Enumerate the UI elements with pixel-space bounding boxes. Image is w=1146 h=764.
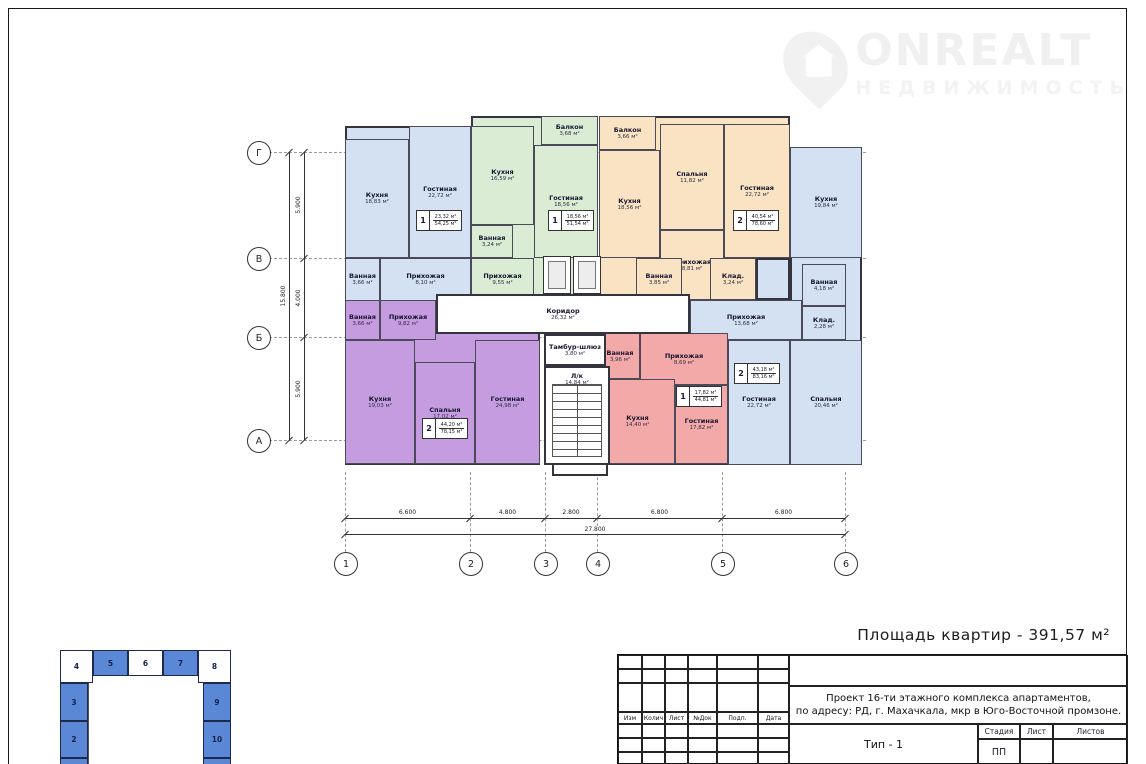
room-name: Прихожая <box>483 272 521 280</box>
sheet-header: Лист <box>1020 724 1053 739</box>
room-label: Кухня14,40 м² <box>626 414 650 429</box>
living-area: 17,82 м² <box>693 390 719 397</box>
room: Клад.2,28 м² <box>802 306 846 340</box>
room-name: Клад. <box>722 272 744 280</box>
room: Ванная4,18 м² <box>802 264 846 306</box>
room: Кухня19,84 м² <box>790 147 862 258</box>
room-name: Ванная <box>607 349 634 357</box>
room: Прихожая8,69 м² <box>640 333 728 385</box>
apartment-stamp: 244,20 м²78,15 м² <box>422 418 468 439</box>
apartment-number: 2 <box>423 419 436 438</box>
apartment-areas: 44,20 м²78,15 м² <box>436 419 467 438</box>
revision-cell <box>618 655 642 669</box>
room-label: Кухня19,84 м² <box>814 195 838 210</box>
revision-cell <box>642 752 665 764</box>
apartment-stamp: 240,54 м²78,60 м² <box>733 210 779 231</box>
revision-cell <box>665 655 688 669</box>
apartment-number: 1 <box>549 211 562 230</box>
revision-cell <box>665 683 688 712</box>
total-dimension-label: 15.800 <box>280 286 287 307</box>
room-area: 3,66 м² <box>349 280 376 287</box>
revision-cell <box>688 655 717 669</box>
total-area: 51,54 м² <box>567 221 589 227</box>
key-plan-cell: 9 <box>203 683 231 721</box>
apartment-areas: 18,56 м²51,54 м² <box>562 211 593 230</box>
room-name: Прихожая <box>406 272 444 280</box>
revision-cell <box>665 669 688 683</box>
room-name: Кухня <box>626 414 650 422</box>
room: Спальня17,02 м² <box>415 362 475 464</box>
key-plan-cell: 6 <box>128 650 163 676</box>
revision-cell <box>717 738 758 752</box>
key-plan-cell: 10 <box>203 721 231 758</box>
revision-cell <box>758 655 789 669</box>
living-area: 43,18 м² <box>751 367 777 374</box>
elevator-shaft <box>573 256 601 294</box>
title-block-empty-cell <box>789 655 1128 686</box>
room: Коридор26,32 м² <box>436 294 690 334</box>
revision-cell <box>618 752 642 764</box>
revision-cell: №Док <box>688 712 717 724</box>
room-label: Прихожая13,68 м² <box>727 313 765 328</box>
total-area: 78,60 м² <box>752 221 774 227</box>
room-name: Ванная <box>646 272 673 280</box>
key-plan-cell: 5 <box>93 650 128 676</box>
room-label: Кухня18,83 м² <box>365 191 389 206</box>
revision-cell <box>717 669 758 683</box>
revision-cell <box>618 683 642 712</box>
room-area: 9,82 м² <box>389 321 427 328</box>
elevator-shaft <box>543 256 571 294</box>
revision-cell <box>688 669 717 683</box>
room-label: Кухня16,59 м² <box>491 168 515 183</box>
room-name: Гостиная <box>549 194 583 202</box>
revision-cell <box>665 752 688 764</box>
sheet-value-cell <box>1020 739 1053 764</box>
project-description: Проект 16-ти этажного комплекса апартаме… <box>789 686 1128 724</box>
room-area: 9,55 м² <box>483 280 521 287</box>
room: Л/к14,84 м² <box>544 366 610 465</box>
room-area: 13,68 м² <box>727 321 765 328</box>
apartment-areas: 17,82 м²44,81 м² <box>690 387 721 406</box>
room-name: Гостиная <box>740 184 774 192</box>
revision-cell <box>758 683 789 712</box>
room-label: Ванная3,85 м² <box>646 272 673 287</box>
dimension-label: 5.900 <box>295 380 302 397</box>
dimension-label: 4.000 <box>295 289 302 306</box>
axis-centerline <box>470 472 471 552</box>
axis-centerline <box>345 472 346 552</box>
room-label: Прихожая8,10 м² <box>406 272 444 287</box>
room-area: 4,18 м² <box>811 286 838 293</box>
room-area: 3,68 м² <box>556 131 583 138</box>
apartment-areas: 43,18 м²83,16 м² <box>748 364 779 383</box>
room: Кухня19,03 м² <box>345 340 415 464</box>
revision-cell: Подп. <box>717 712 758 724</box>
room-area: 3,96 м² <box>607 357 634 364</box>
total-area-label: Площадь квартир - 391,57 м² <box>857 626 1110 644</box>
room-area: 26,32 м² <box>546 315 579 322</box>
apartment-areas: 40,54 м²78,60 м² <box>747 211 778 230</box>
apartment-stamp: 123,32 м²54,25 м² <box>416 210 462 231</box>
room-area: 8,69 м² <box>665 360 703 367</box>
room-label: Гостиная24,98 м² <box>491 395 525 410</box>
room: Кухня18,56 м² <box>599 150 660 258</box>
revision-cell <box>665 738 688 752</box>
living-area: 40,54 м² <box>750 214 776 221</box>
revision-cell <box>758 724 789 738</box>
room-label: Клад.2,28 м² <box>813 316 835 331</box>
room-name: Балкон <box>614 126 641 134</box>
room-name: Л/к <box>546 372 608 380</box>
dimension-line <box>304 152 305 440</box>
revision-cell <box>717 724 758 738</box>
col-axis-bubble: 2 <box>459 552 483 576</box>
key-plan-courtyard-outline <box>88 675 205 764</box>
room-name: Спальня <box>429 406 460 414</box>
room-name: Кухня <box>491 168 515 176</box>
room-label: Тамбур-шлюз3,80 м² <box>549 343 601 358</box>
revision-cell <box>717 683 758 712</box>
revision-cell <box>642 655 665 669</box>
revision-cell <box>688 724 717 738</box>
room-area: 18,56 м² <box>549 202 583 209</box>
room-area: 18,56 м² <box>618 205 642 212</box>
axis-centerline <box>545 472 546 552</box>
dimension-label: 6.800 <box>650 509 669 516</box>
room-label: Кухня18,56 м² <box>618 197 642 212</box>
brand-name: ONREALT <box>855 29 1131 73</box>
total-area: 44,81 м² <box>695 397 717 403</box>
room-name: Прихожая <box>727 313 765 321</box>
room-label: Спальня11,82 м² <box>676 170 707 185</box>
room-name: Гостиная <box>491 395 525 403</box>
room: Клад.3,24 м² <box>710 258 756 300</box>
room-label: Гостиная22,72 м² <box>740 184 774 199</box>
room: Балкон3,66 м² <box>599 116 656 150</box>
room: Гостиная22,72 м² <box>724 124 790 258</box>
room-label: Клад.3,24 м² <box>722 272 744 287</box>
living-area: 18,56 м² <box>565 214 591 221</box>
dimension-label: 2.800 <box>561 509 580 516</box>
dimension-label: 5.900 <box>295 196 302 213</box>
room-label: Ванная3,24 м² <box>479 234 506 249</box>
room-label: Гостиная22,72 м² <box>423 185 457 200</box>
revision-cell <box>758 669 789 683</box>
sheets-value-cell <box>1053 739 1128 764</box>
room-area: 3,80 м² <box>549 351 601 358</box>
room-area: 3,24 м² <box>479 242 506 249</box>
room: Ванная3,66 м² <box>345 300 380 340</box>
room: Прихожая9,82 м² <box>380 300 436 340</box>
room: Кухня16,59 м² <box>471 126 534 225</box>
axis-centerline <box>722 472 723 552</box>
apartment-stamp: 118,56 м²51,54 м² <box>548 210 594 231</box>
room-area: 18,83 м² <box>365 199 389 206</box>
room-label: Ванная3,66 м² <box>349 313 376 328</box>
room-area: 3,85 м² <box>646 280 673 287</box>
key-plan-cell <box>60 758 88 764</box>
row-axis-bubble: Г <box>247 141 271 165</box>
total-area: 83,16 м² <box>753 374 775 380</box>
room-area: 22,72 м² <box>742 403 776 410</box>
room: Ванная3,24 м² <box>471 225 513 258</box>
room-name: Кухня <box>814 195 838 203</box>
room-label: Кухня19,03 м² <box>368 395 392 410</box>
living-area: 44,20 м² <box>439 422 465 429</box>
room: Спальня20,46 м² <box>790 340 862 465</box>
room-name: Спальня <box>810 395 841 403</box>
revision-cell <box>618 738 642 752</box>
room-area: 16,59 м² <box>491 176 515 183</box>
room: Тамбур-шлюз3,80 м² <box>544 334 606 366</box>
room-label: Гостиная17,82 м² <box>685 417 719 432</box>
axis-centerline <box>845 472 846 552</box>
dimension-line <box>289 152 290 440</box>
room-name: Ванная <box>811 278 838 286</box>
revision-cell <box>642 738 665 752</box>
room-label: Гостиная18,56 м² <box>549 194 583 209</box>
row-axis-bubble: Б <box>247 326 271 350</box>
room-area: 19,84 м² <box>814 203 838 210</box>
revision-cell <box>717 752 758 764</box>
revision-cell: Дата <box>758 712 789 724</box>
room-area: 11,82 м² <box>676 178 707 185</box>
room-name: Кухня <box>618 197 642 205</box>
room-name: Ванная <box>349 272 376 280</box>
room-name: Гостиная <box>742 395 776 403</box>
dimension-line <box>345 534 845 535</box>
revision-cell <box>642 669 665 683</box>
room-name: Кухня <box>368 395 392 403</box>
key-plan-cell: 3 <box>60 683 88 721</box>
key-plan-cell: 2 <box>60 721 88 758</box>
room: Гостиная18,56 м² <box>534 145 598 258</box>
room-label: Прихожая9,55 м² <box>483 272 521 287</box>
row-axis-bubble: В <box>247 247 271 271</box>
room-label: Спальня20,46 м² <box>810 395 841 410</box>
room: Кухня18,83 м² <box>345 139 409 258</box>
title-block: ИзмКоличЛист№ДокПодп.Дата Проект 16-ти э… <box>617 654 1127 764</box>
watermark-text: ONREALT НЕДВИЖИМОСТЬ <box>855 29 1131 99</box>
room: Ванная3,66 м² <box>345 258 380 301</box>
room-label: Балкон3,66 м² <box>614 126 641 141</box>
revision-cell <box>688 683 717 712</box>
room-area: 2,28 м² <box>813 324 835 331</box>
room-area: 14,40 м² <box>626 422 650 429</box>
stage-value: ПП <box>978 739 1020 764</box>
revision-cell <box>642 683 665 712</box>
apartment-areas: 23,32 м²54,25 м² <box>430 211 461 230</box>
key-plan-cell <box>203 758 231 764</box>
apartment-number: 1 <box>677 387 690 406</box>
room-name: Гостиная <box>685 417 719 425</box>
room: Гостиная24,98 м² <box>475 340 540 464</box>
sheets-header: Листов <box>1053 724 1128 739</box>
room-name: Ванная <box>479 234 506 242</box>
room-name: Прихожая <box>665 352 703 360</box>
room-area: 19,03 м² <box>368 403 392 410</box>
apartment-number: 1 <box>417 211 430 230</box>
col-axis-bubble: 3 <box>534 552 558 576</box>
room-label: Прихожая8,69 м² <box>665 352 703 367</box>
row-axis-bubble: А <box>247 429 271 453</box>
drawing-sheet: ONREALT НЕДВИЖИМОСТЬ Кухня18,83 м²Гостин… <box>0 0 1146 764</box>
living-area: 23,32 м² <box>433 214 459 221</box>
col-axis-bubble: 4 <box>586 552 610 576</box>
room-name: Коридор <box>546 307 579 315</box>
room-label: Ванная4,18 м² <box>811 278 838 293</box>
revision-cell <box>688 738 717 752</box>
room-name: Спальня <box>676 170 707 178</box>
room-name: Ванная <box>349 313 376 321</box>
revision-cell <box>618 724 642 738</box>
key-plan-cell: 8 <box>198 650 231 683</box>
room-area: 22,72 м² <box>423 193 457 200</box>
col-axis-bubble: 1 <box>334 552 358 576</box>
room: Гостиная22,72 м² <box>409 126 471 258</box>
total-dimension-label: 27.800 <box>584 526 607 533</box>
room-name: Клад. <box>813 316 835 324</box>
location-pin-house-icon <box>770 18 861 109</box>
room-area: 3,24 м² <box>722 280 744 287</box>
room-area: 3,66 м² <box>349 321 376 328</box>
room-label: Коридор26,32 м² <box>546 307 579 322</box>
room-label: Ванная3,66 м² <box>349 272 376 287</box>
room-name: Гостиная <box>423 185 457 193</box>
room: Кухня14,40 м² <box>600 379 675 464</box>
room-label: Ванная3,96 м² <box>607 349 634 364</box>
stairs-pattern <box>552 384 602 457</box>
revision-cell <box>618 669 642 683</box>
room-name: Балкон <box>556 123 583 131</box>
room-area: 8,10 м² <box>406 280 444 287</box>
revision-cell <box>688 752 717 764</box>
revision-cell <box>665 724 688 738</box>
house-icon <box>805 57 831 77</box>
room-area: 22,72 м² <box>740 192 774 199</box>
revision-cell <box>717 655 758 669</box>
apartment-stamp: 243,18 м²83,16 м² <box>734 363 780 384</box>
project-line-1: Проект 16-ти этажного комплекса апартаме… <box>826 692 1091 706</box>
axis-centerline <box>597 472 598 552</box>
revision-cell: Изм <box>618 712 642 724</box>
brand-subtitle: НЕДВИЖИМОСТЬ <box>855 77 1131 99</box>
room: Балкон3,68 м² <box>541 116 598 145</box>
apartment-stamp: 117,82 м²44,81 м² <box>676 386 722 407</box>
key-plan-cell: 7 <box>163 650 198 676</box>
project-line-2: по адресу: РД, г. Махачкала, мкр в Юго-В… <box>796 705 1121 719</box>
revision-cell: Колич <box>642 712 665 724</box>
onrealt-watermark: ONREALT НЕДВИЖИМОСТЬ <box>786 18 1131 110</box>
revision-cell <box>758 738 789 752</box>
apartment-number: 2 <box>734 211 747 230</box>
revision-cell: Лист <box>665 712 688 724</box>
revision-cell <box>758 752 789 764</box>
room: Гостиная22,72 м² <box>728 340 790 465</box>
total-area: 54,25 м² <box>435 221 457 227</box>
room-name: Кухня <box>365 191 389 199</box>
room-name: Тамбур-шлюз <box>549 343 601 351</box>
revision-cell <box>642 724 665 738</box>
col-axis-bubble: 6 <box>834 552 858 576</box>
stage-header: Стадия <box>978 724 1020 739</box>
total-area: 78,15 м² <box>441 429 463 435</box>
room-area: 3,66 м² <box>614 134 641 141</box>
room-name: Прихожая <box>389 313 427 321</box>
dimension-label: 6.800 <box>774 509 793 516</box>
dimension-label: 4.800 <box>498 509 517 516</box>
dimension-label: 6.600 <box>398 509 417 516</box>
apartment-outline <box>756 258 790 300</box>
room-label: Балкон3,68 м² <box>556 123 583 138</box>
room-area: 24,98 м² <box>491 403 525 410</box>
room: Спальня11,82 м² <box>660 124 724 230</box>
col-axis-bubble: 5 <box>711 552 735 576</box>
apartment-number: 2 <box>735 364 748 383</box>
room-area: 20,46 м² <box>810 403 841 410</box>
room-label: Гостиная22,72 м² <box>742 395 776 410</box>
room-label: Прихожая9,82 м² <box>389 313 427 328</box>
key-plan-cell: 4 <box>60 650 93 683</box>
sheet-type-label: Тип - 1 <box>789 724 978 764</box>
room-area: 17,82 м² <box>685 425 719 432</box>
